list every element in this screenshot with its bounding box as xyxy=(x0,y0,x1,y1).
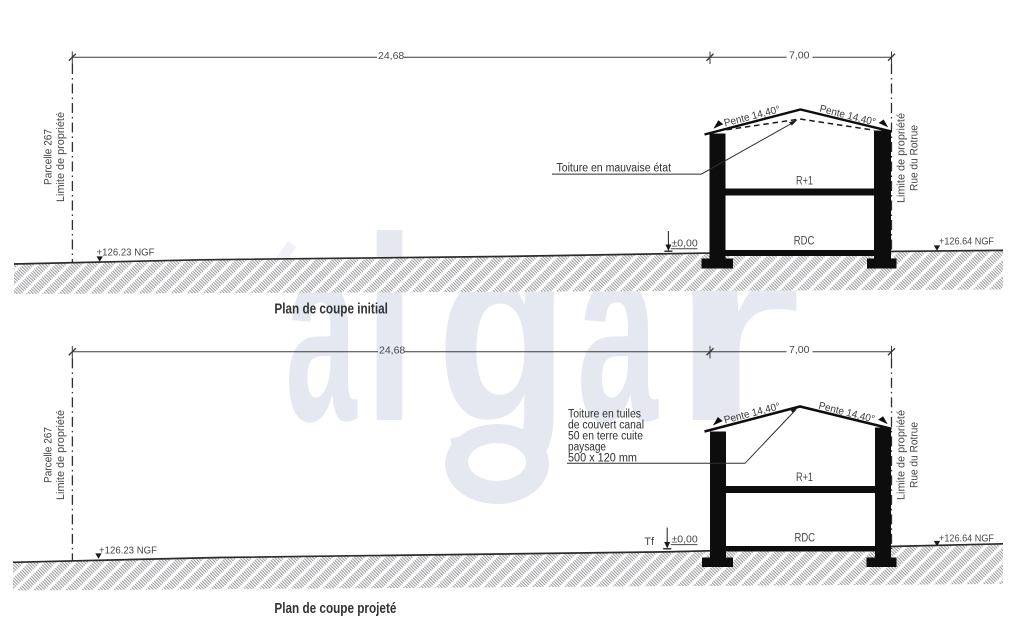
svg-text:l: l xyxy=(364,184,416,477)
svg-text:+126.64 NGF: +126.64 NGF xyxy=(939,533,994,545)
svg-text:Rue du Rotrue: Rue du Rotrue xyxy=(909,125,921,191)
svg-text:Tf: Tf xyxy=(644,536,655,548)
svg-text:RDC: RDC xyxy=(795,533,816,545)
svg-text:Rue du Rotrue: Rue du Rotrue xyxy=(909,422,921,488)
svg-text:24,68: 24,68 xyxy=(378,50,404,62)
svg-text:Plan de coupe projeté: Plan de coupe projeté xyxy=(274,600,396,617)
svg-text:Limite de propriété: Limite de propriété xyxy=(55,410,67,500)
svg-text:Limite de propriété: Limite de propriété xyxy=(896,113,908,203)
svg-text:R+1: R+1 xyxy=(796,472,813,484)
svg-text:±0,00: ±0,00 xyxy=(672,237,698,249)
svg-text:24,68: 24,68 xyxy=(379,344,405,356)
svg-text:RDC: RDC xyxy=(794,235,815,247)
svg-text:7,00: 7,00 xyxy=(789,50,810,62)
svg-text:Parcelle 267: Parcelle 267 xyxy=(43,129,55,185)
svg-text:Plan de coupe initial: Plan de coupe initial xyxy=(274,300,388,317)
svg-text:Limite de propriété: Limite de propriété xyxy=(896,410,908,500)
svg-text:+126.23 NGF: +126.23 NGF xyxy=(99,545,157,557)
svg-text:Limite de propriété: Limite de propriété xyxy=(55,112,67,202)
svg-text:a: a xyxy=(285,183,358,476)
svg-text:Parcelle 267: Parcelle 267 xyxy=(43,427,55,483)
svg-text:Toiture en mauvaise état: Toiture en mauvaise état xyxy=(557,163,672,175)
svg-text:500 x 120 mm: 500 x 120 mm xyxy=(568,452,637,464)
svg-text:7,00: 7,00 xyxy=(789,344,810,356)
svg-text:R+1: R+1 xyxy=(796,176,813,188)
svg-text:+126.64 NGF: +126.64 NGF xyxy=(939,236,994,248)
svg-text:±0,00: ±0,00 xyxy=(672,533,698,545)
svg-text:r: r xyxy=(669,184,802,476)
svg-text:+126.23 NGF: +126.23 NGF xyxy=(97,247,155,259)
